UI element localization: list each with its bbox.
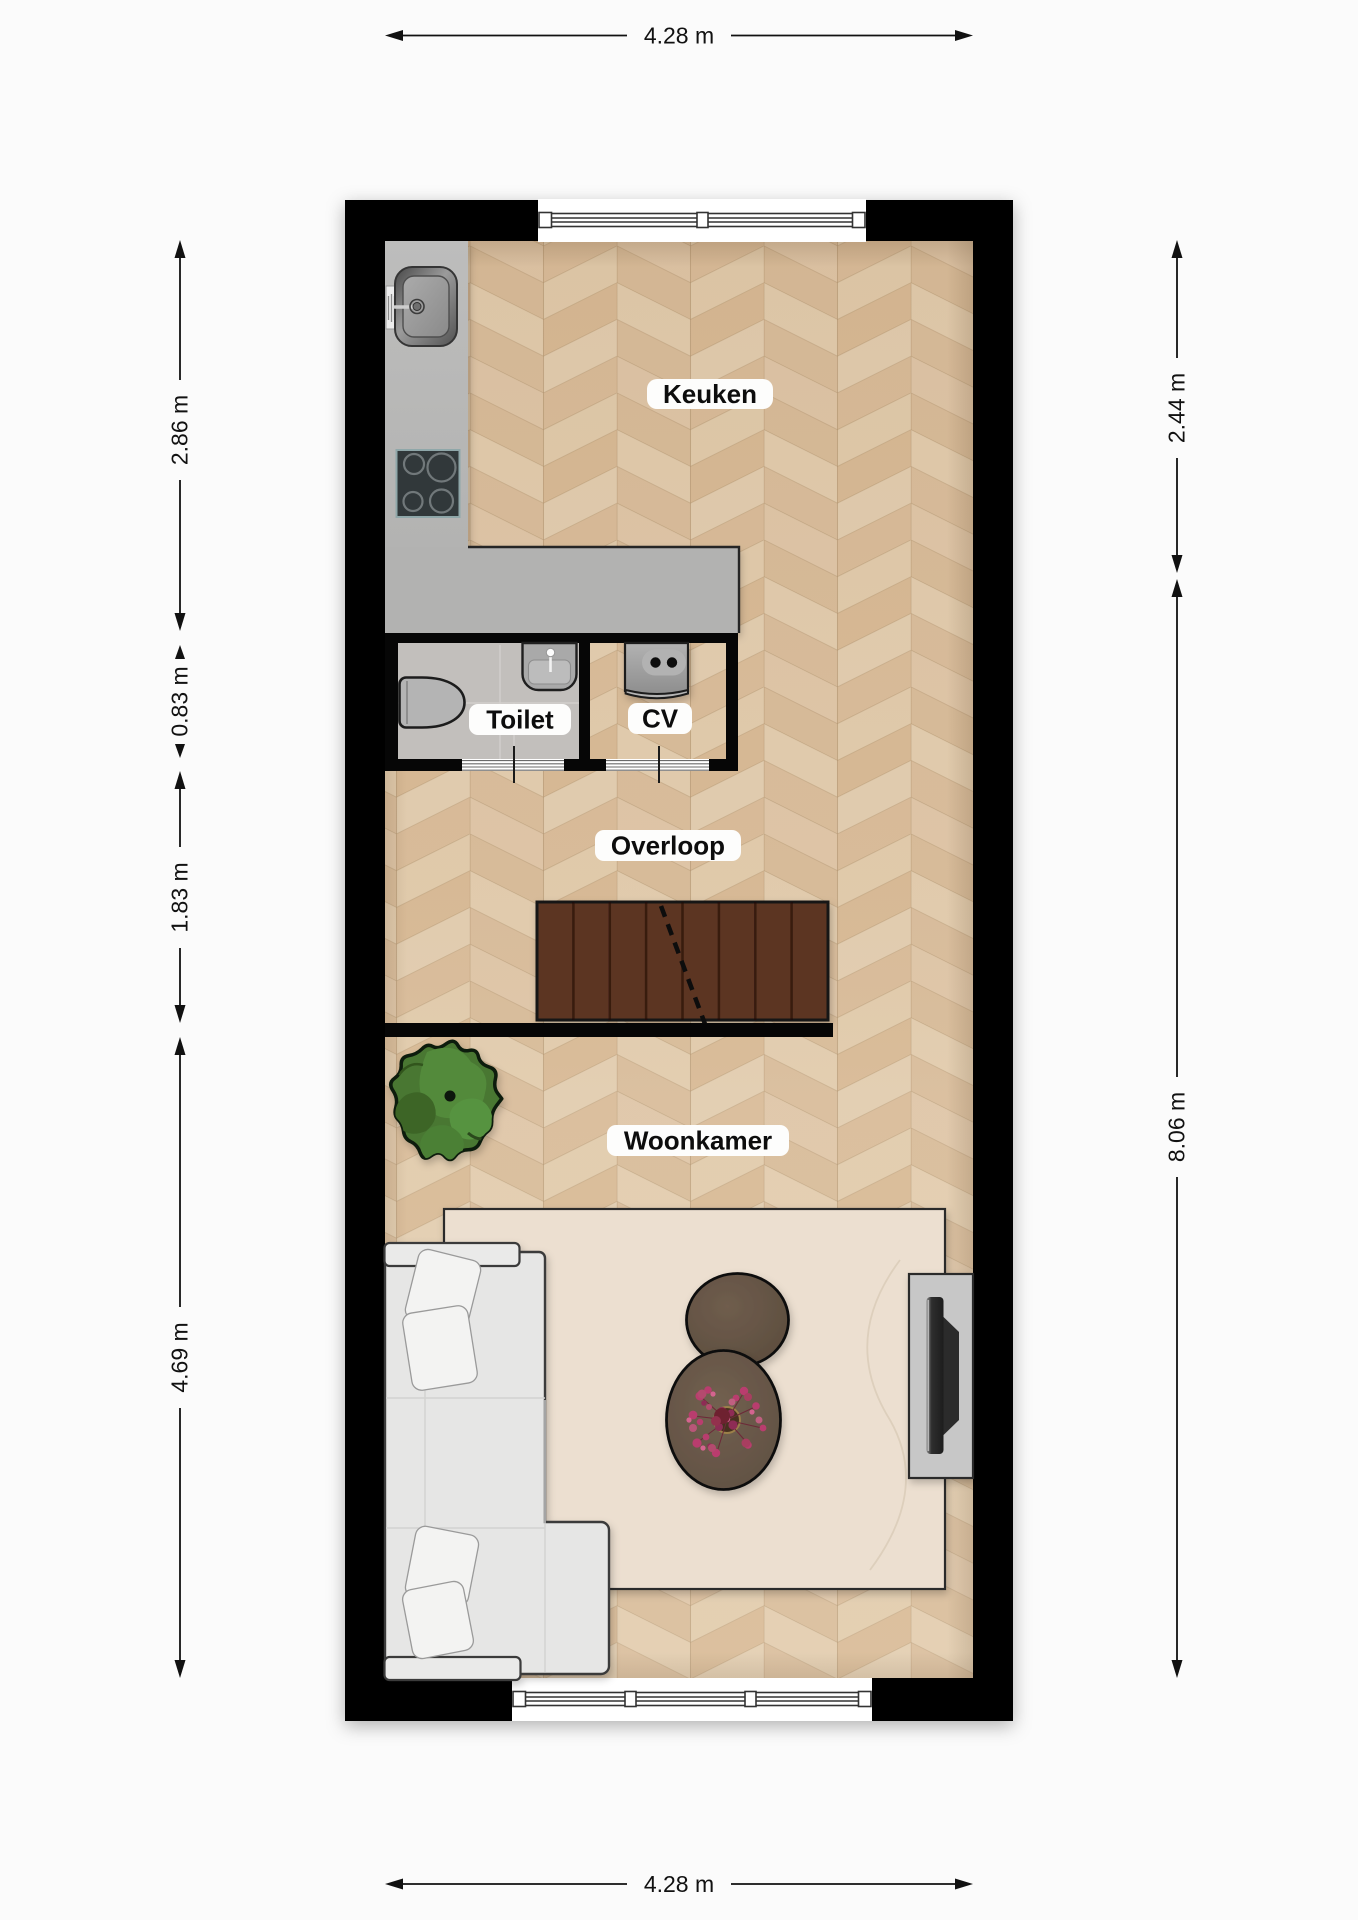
svg-text:4.28 m: 4.28 m — [644, 23, 714, 49]
svg-text:Keuken: Keuken — [663, 379, 757, 409]
svg-text:4.69 m: 4.69 m — [167, 1322, 193, 1392]
svg-text:CV: CV — [642, 704, 679, 734]
svg-text:Overloop: Overloop — [611, 831, 725, 861]
svg-text:2.44 m: 2.44 m — [1164, 373, 1190, 443]
svg-text:4.28 m: 4.28 m — [644, 1871, 714, 1897]
svg-text:8.06 m: 8.06 m — [1164, 1092, 1190, 1162]
svg-text:Woonkamer: Woonkamer — [624, 1126, 772, 1156]
svg-text:0.83 m: 0.83 m — [167, 666, 193, 736]
svg-text:Toilet: Toilet — [486, 705, 554, 735]
svg-text:2.86 m: 2.86 m — [167, 395, 193, 465]
svg-text:1.83 m: 1.83 m — [167, 862, 193, 932]
